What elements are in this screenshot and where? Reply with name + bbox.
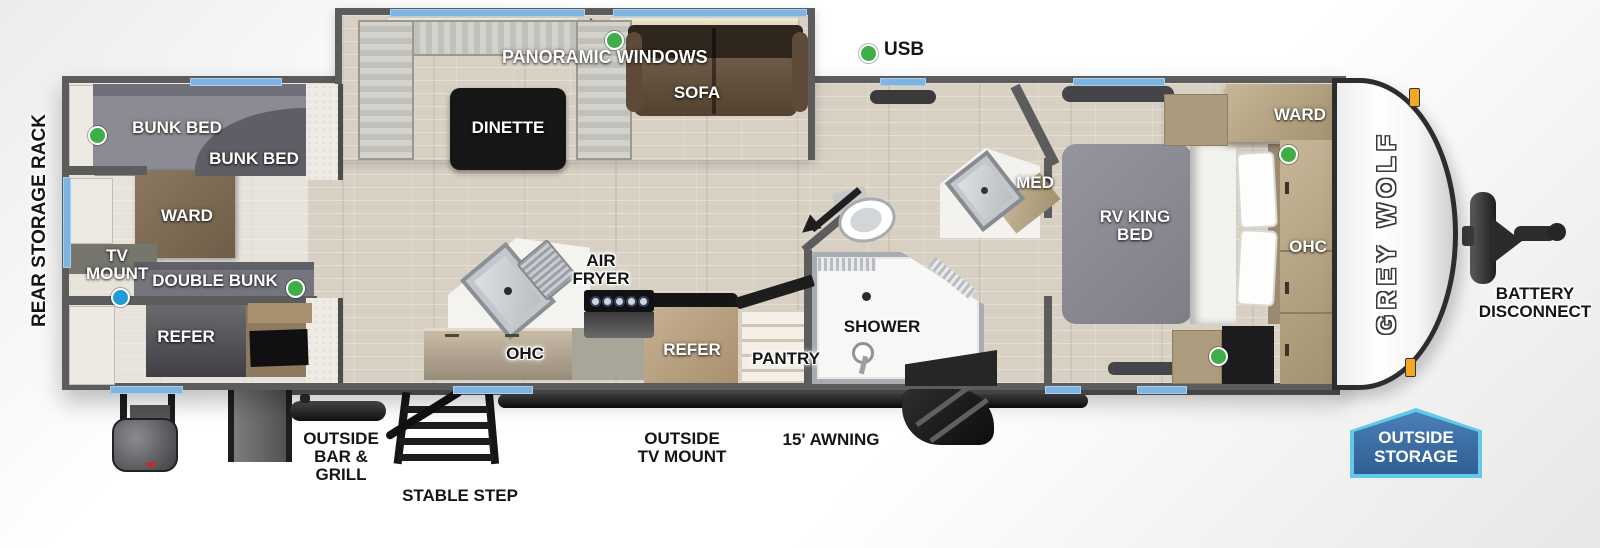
sofa-label: SOFA: [657, 84, 737, 102]
spare-tire: [112, 418, 178, 472]
rear-refer-label: REFER: [146, 328, 226, 346]
battery-disconnect-label: BATTERY DISCONNECT: [1473, 285, 1597, 321]
stable-step-handrail: [385, 387, 464, 440]
clearance-light: [1409, 88, 1420, 107]
air-fryer-label: AIR FRYER: [566, 252, 636, 288]
stove-knob: [616, 298, 623, 305]
stable-step-rung: [398, 454, 494, 461]
bed-pillow: [1236, 229, 1278, 307]
overhead-cabinet-bar: [870, 90, 936, 104]
bedroom-overhead-cab: [1164, 94, 1228, 146]
stabilizer-jack: [228, 390, 292, 462]
outside-storage-label: OUTSIDE STORAGE: [1366, 428, 1466, 467]
kitchen-refer-label: REFER: [650, 341, 734, 359]
window-strip: [880, 78, 926, 86]
outside-storage-badge-inner: OUTSIDE STORAGE: [1354, 412, 1478, 474]
ohc-door-seam: [1280, 312, 1334, 314]
sink-drain: [504, 287, 512, 295]
dinette-label: DINETTE: [455, 119, 561, 137]
cabinet-handle: [505, 334, 519, 337]
outside-bar-grill-label: OUTSIDE BAR & GRILL: [291, 430, 391, 484]
bedroom-black-cabinet: [1222, 326, 1274, 384]
stove-knob: [592, 298, 599, 305]
overhead-cabinet-bar: [1062, 86, 1174, 102]
double-bunk-label: DOUBLE BUNK: [145, 272, 285, 290]
wall: [69, 166, 147, 175]
window-strip: [390, 9, 585, 17]
stable-step-rung: [404, 406, 488, 413]
left-storage-block: [69, 306, 115, 385]
usb-indicator-icon: [605, 31, 624, 50]
awning-label: 15' AWNING: [776, 431, 886, 449]
bath-sink-drain: [981, 187, 988, 194]
stove-knob: [640, 298, 647, 305]
window-strip: [613, 9, 807, 17]
floorplan: GREY WOLF REAR STORAGE RACK BUNK BED BUN…: [0, 0, 1600, 548]
bedroom-ohc-label: OHC: [1280, 238, 1336, 256]
awning-bar: [498, 394, 1088, 408]
grill-hook: [300, 394, 310, 403]
stable-step-label: STABLE STEP: [400, 487, 520, 505]
hitch-brace: [1492, 218, 1522, 264]
hitch-coupler: [1548, 223, 1566, 241]
panoramic-windows-label: PANORAMIC WINDOWS: [502, 48, 687, 67]
shower-shelf: [818, 258, 876, 271]
shower-drain: [862, 292, 871, 301]
pantry-label: PANTRY: [750, 350, 822, 368]
wall: [1044, 296, 1052, 384]
window-strip: [190, 78, 282, 86]
sofa-arm: [792, 32, 808, 112]
window-strip: [63, 177, 71, 268]
window-strip: [1045, 386, 1081, 394]
usb-indicator-icon: [286, 279, 305, 298]
wall-pillar: [306, 84, 343, 180]
usb-indicator-icon: [1279, 145, 1298, 164]
ohc-handle: [1285, 182, 1289, 194]
ohc-handle: [1285, 344, 1289, 356]
double-bunk-edge: [134, 262, 314, 270]
usb-indicator-icon: [88, 126, 107, 145]
bed-pillow: [1236, 151, 1278, 229]
bunk-bed-upper-label: BUNK BED: [122, 119, 232, 137]
bunk-bed-lower-label: BUNK BED: [199, 150, 309, 168]
brand-logo: GREY WOLF: [1373, 97, 1407, 367]
stove-knob: [628, 298, 635, 305]
cabinet-handle: [445, 334, 459, 337]
pantry-shelves: [740, 310, 806, 383]
usb-indicator-icon: [1209, 347, 1228, 366]
bedroom-ward-label: WARD: [1255, 106, 1345, 124]
stove-knob: [604, 298, 611, 305]
rv-king-bed-label: RV KING BED: [1093, 208, 1177, 244]
usb-legend-icon: [859, 44, 878, 63]
outside-kitchen-top: [248, 303, 312, 323]
grill-rail: [290, 401, 386, 421]
tv-mount-indicator-icon: [111, 288, 130, 307]
med-label: MED: [1007, 174, 1063, 192]
king-bed-sheet: [1190, 144, 1236, 324]
tire-reflector: [146, 462, 156, 467]
dinette-bench-left: [358, 20, 414, 160]
ohc-handle: [1285, 282, 1289, 294]
kitchen-ohc-label: OHC: [495, 345, 555, 363]
outside-storage-badge: OUTSIDE STORAGE: [1350, 408, 1482, 478]
air-fryer-oven: [584, 312, 654, 338]
overhead-cabinet-bar: [1108, 362, 1178, 375]
entry-steps: [902, 389, 994, 445]
window-strip: [453, 386, 533, 394]
outside-tv-mount-label: OUTSIDE TV MOUNT: [632, 430, 732, 466]
window-strip: [1137, 386, 1187, 394]
window-strip: [110, 386, 183, 394]
shower-label: SHOWER: [832, 318, 932, 336]
rear-storage-rack-label: REAR STORAGE RACK: [30, 137, 50, 327]
left-storage-block: [69, 178, 113, 244]
sofa-arm: [626, 32, 642, 112]
tv-mount-label: TV MOUNT: [86, 247, 148, 283]
stable-step-rung: [400, 438, 492, 445]
window-strip: [1073, 78, 1165, 86]
outside-kitchen-tv: [249, 329, 308, 367]
ward-label: WARD: [142, 207, 232, 225]
stove-knob-strip: [584, 290, 654, 312]
hitch-tab: [1462, 226, 1474, 246]
usb-legend-label: USB: [884, 40, 934, 60]
